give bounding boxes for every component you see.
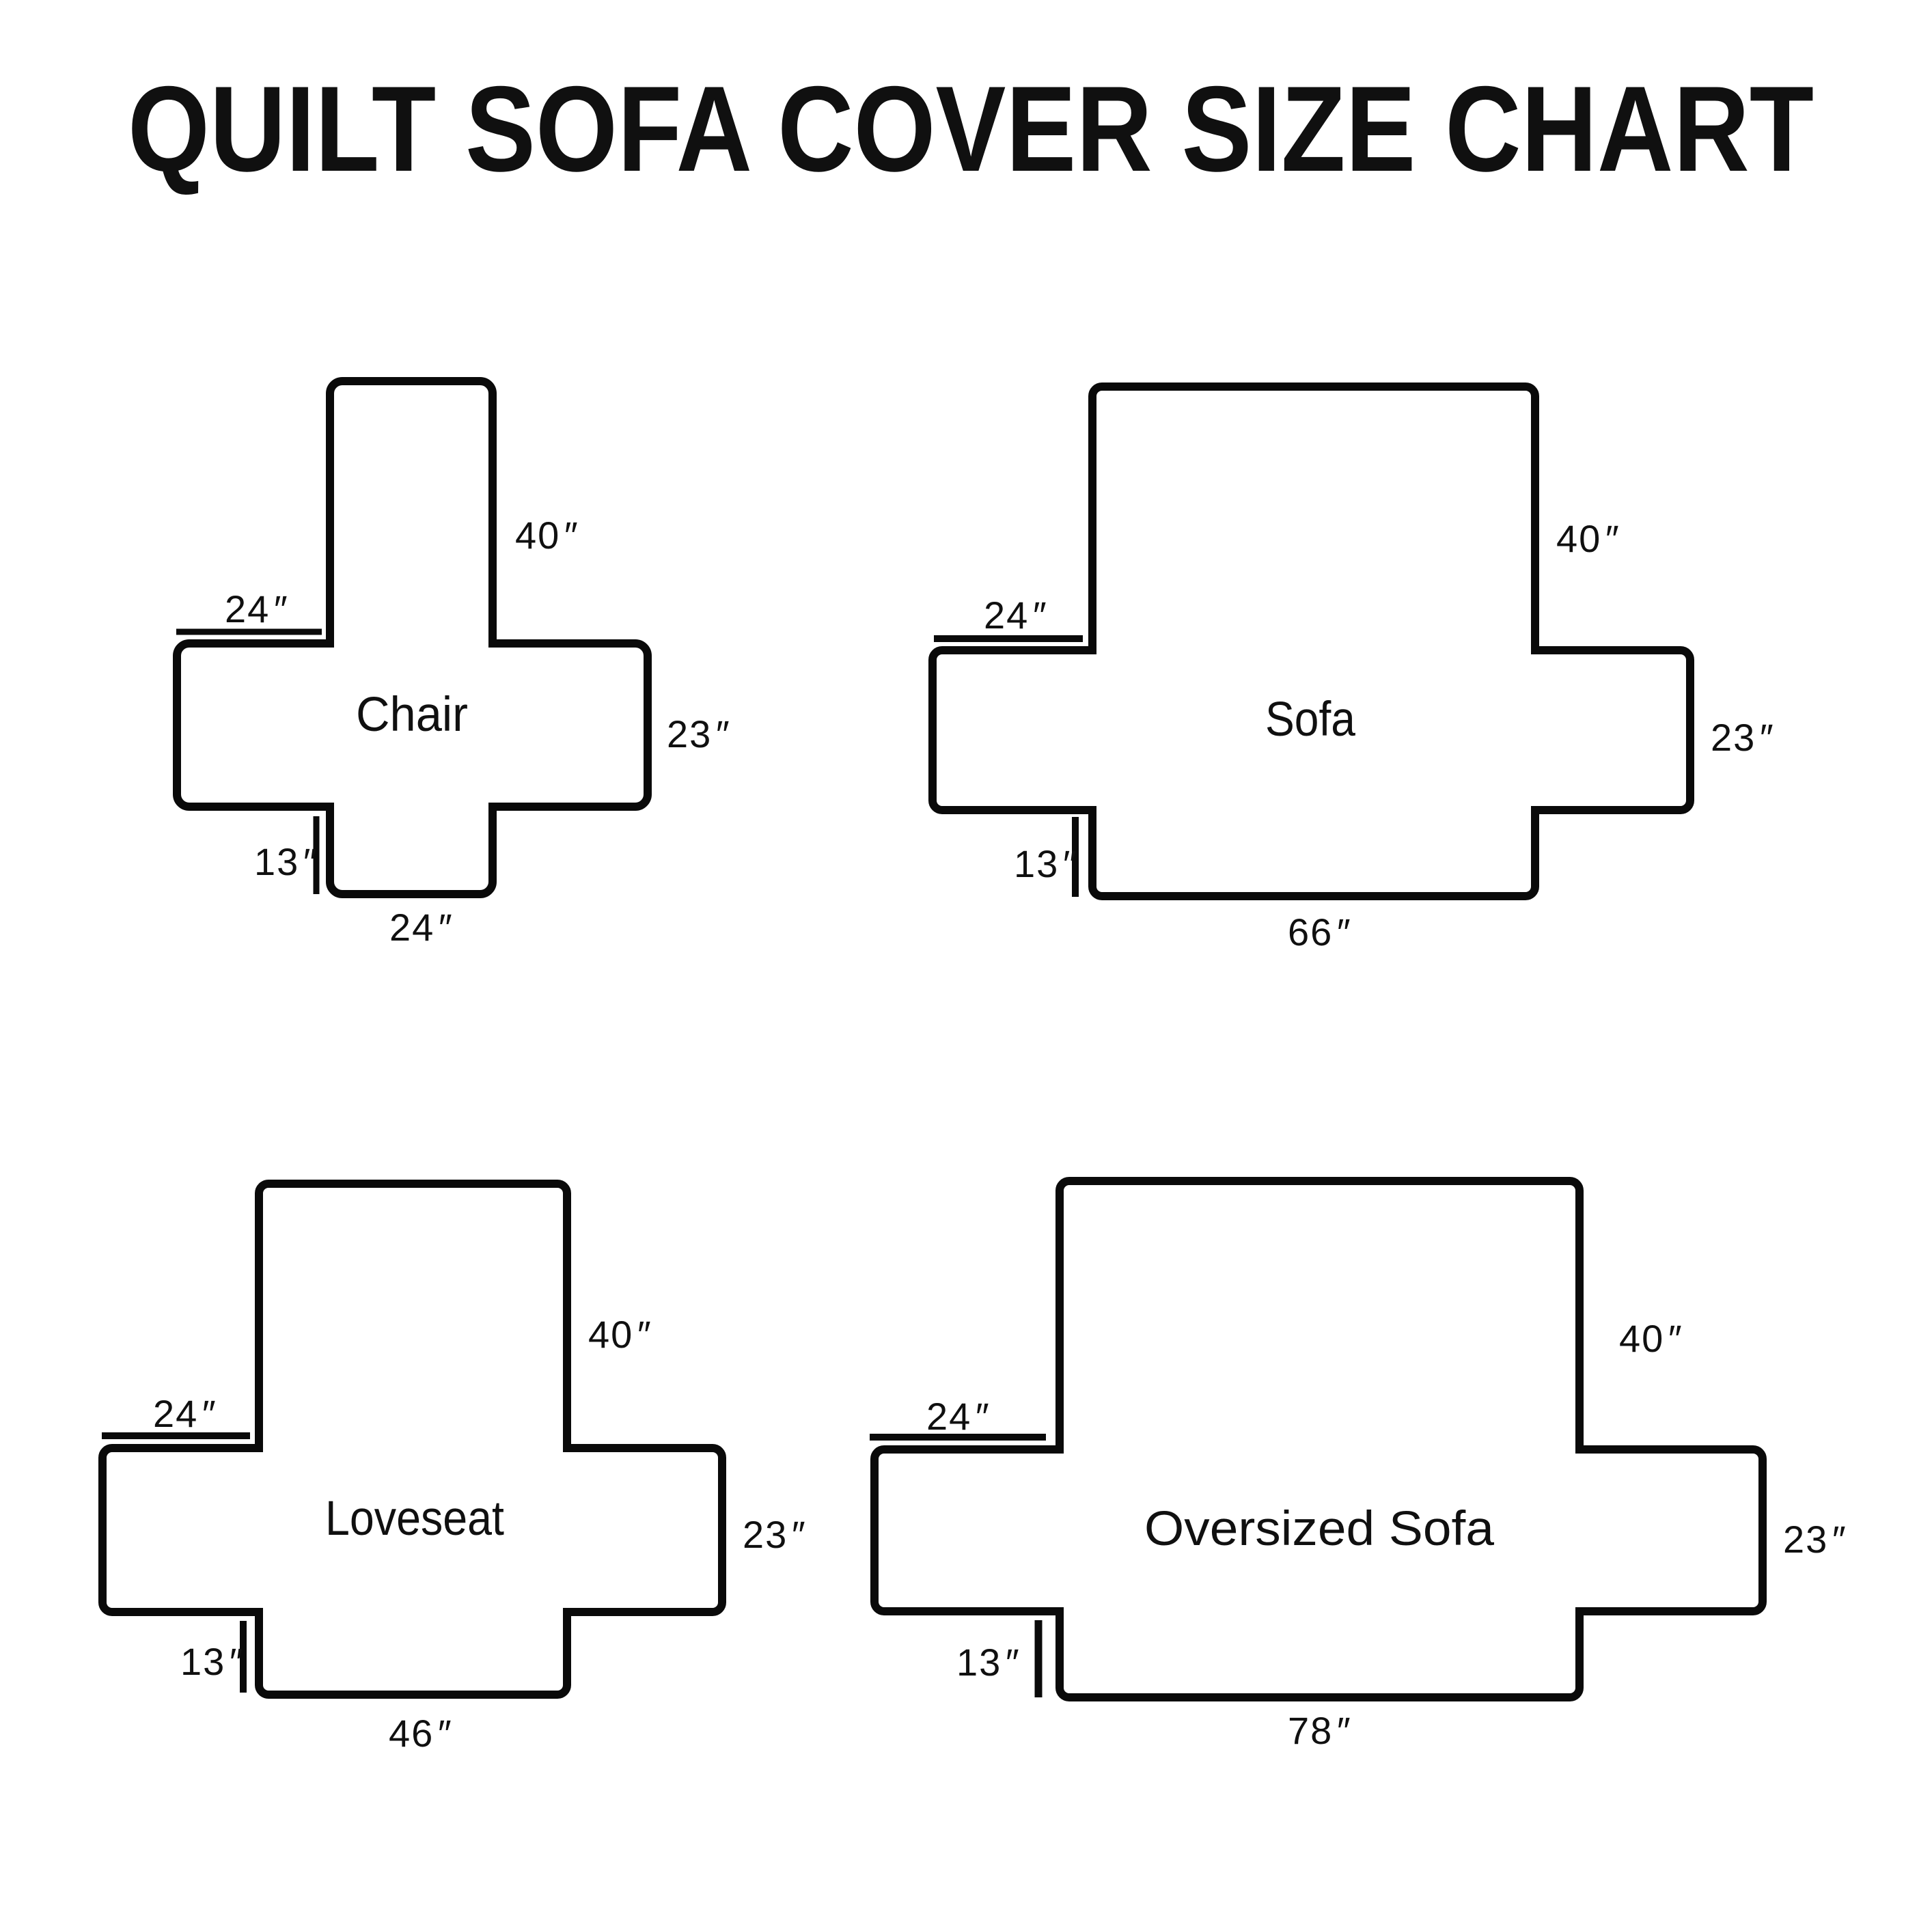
svg-text:46″: 46″ [389,1712,451,1755]
svg-text:40″: 40″ [1619,1317,1681,1360]
svg-text:78″: 78″ [1288,1709,1350,1752]
svg-text:Sofa: Sofa [1265,693,1355,747]
svg-text:13″: 13″ [254,840,316,883]
svg-text:24″: 24″ [225,587,287,630]
svg-text:23″: 23″ [1783,1518,1845,1561]
svg-text:23″: 23″ [667,712,729,755]
svg-text:24″: 24″ [984,594,1046,637]
svg-text:24″: 24″ [153,1392,215,1435]
svg-text:24″: 24″ [926,1395,989,1438]
svg-text:13″: 13″ [956,1641,1019,1684]
svg-text:23″: 23″ [1711,716,1773,759]
svg-text:13″: 13″ [1014,842,1076,885]
svg-text:24″: 24″ [389,906,452,949]
svg-text:40″: 40″ [515,514,577,557]
svg-text:40″: 40″ [1556,517,1618,560]
svg-text:QUILT SOFA COVER SIZE CHART: QUILT SOFA COVER SIZE CHART [128,61,1814,197]
svg-text:Chair: Chair [356,688,468,742]
svg-text:Oversized Sofa: Oversized Sofa [1144,1502,1495,1556]
svg-text:66″: 66″ [1288,911,1350,954]
svg-text:13″: 13″ [180,1640,243,1683]
svg-text:40″: 40″ [588,1313,650,1356]
svg-text:Loveseat: Loveseat [325,1492,504,1546]
svg-text:23″: 23″ [743,1513,805,1556]
